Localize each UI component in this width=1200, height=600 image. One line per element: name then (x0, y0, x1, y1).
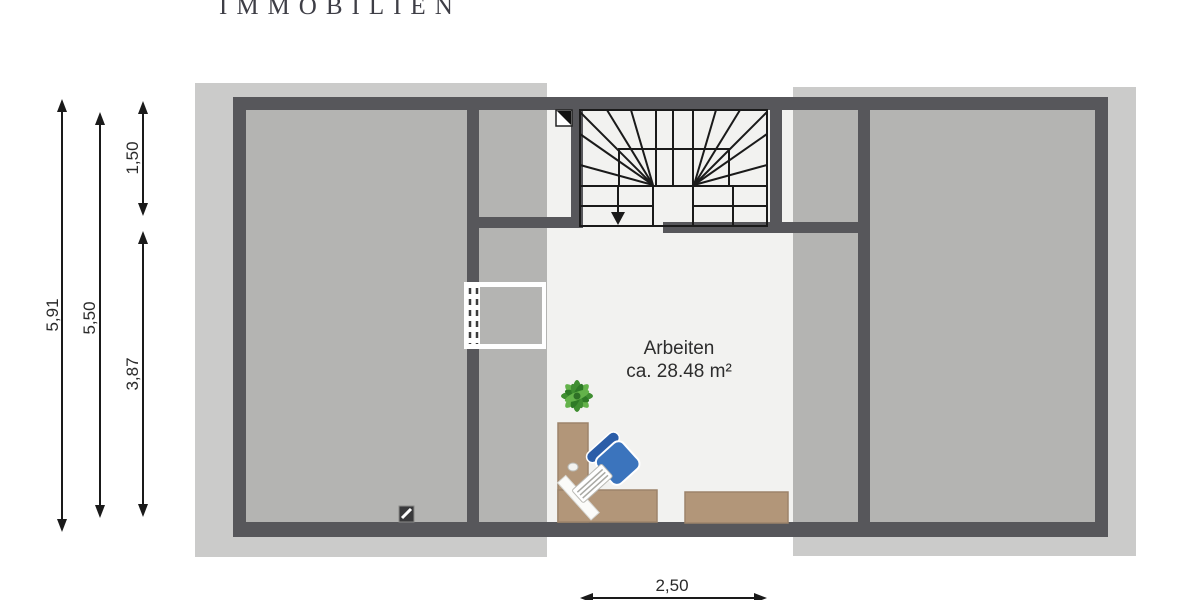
dim-room-depth: 3,87 (123, 357, 142, 390)
plant (561, 380, 593, 412)
chimney (399, 506, 414, 522)
floorplan-drawing: 5,91 5,50 1,50 3,87 2,50 Arbeiten ca. 28… (0, 0, 1200, 600)
dim-stair-width: 2,50 (655, 576, 688, 595)
room-area: ca. 28.48 m² (626, 361, 732, 382)
sideboard (685, 492, 788, 523)
knee-wall-door (464, 282, 546, 349)
dim-stair-depth: 1,50 (123, 141, 142, 174)
dim-inner-height: 5,50 (80, 301, 99, 334)
floorplan-page: IMMOBILIEN (0, 0, 1200, 600)
entry-marker (556, 110, 572, 126)
room-name: Arbeiten (644, 338, 715, 359)
dim-outer-height: 5,91 (43, 298, 62, 331)
mouse (568, 463, 578, 471)
